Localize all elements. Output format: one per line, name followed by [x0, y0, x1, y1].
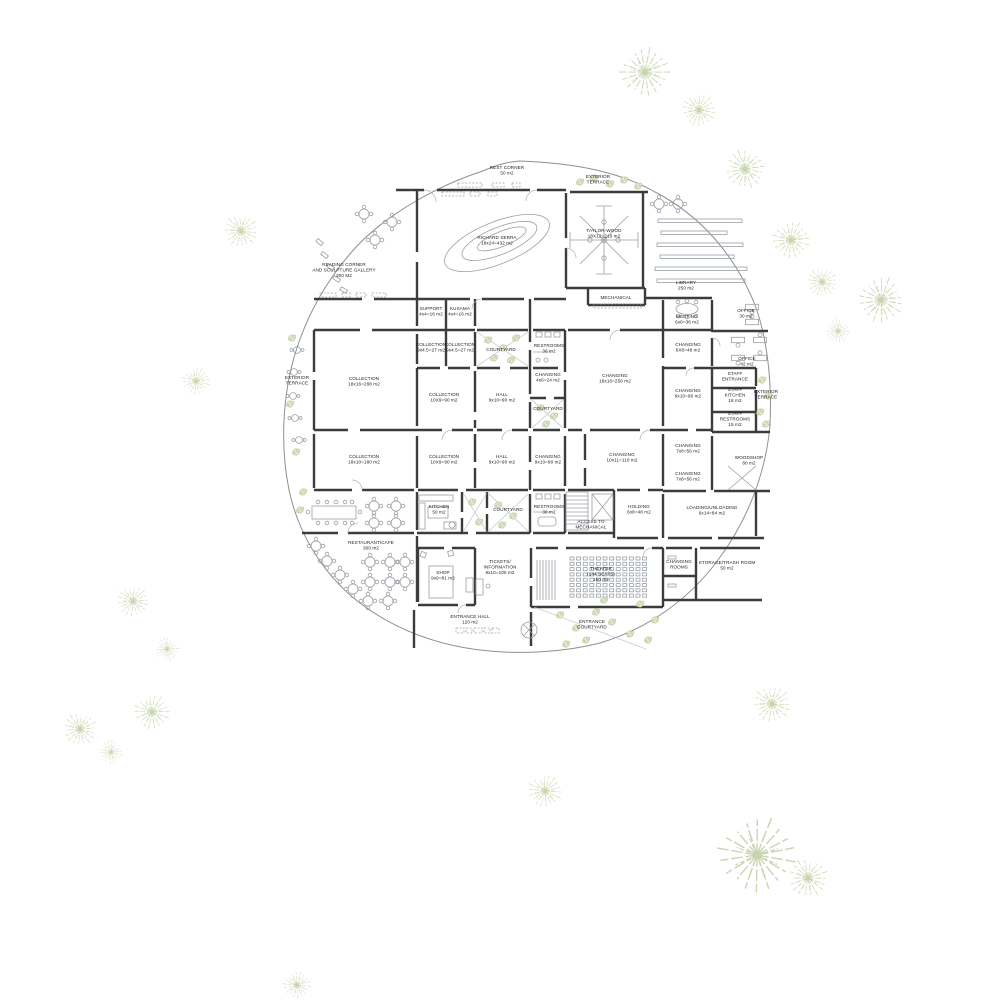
- room-label-taylor_wood: 18X12=216 m2: [588, 234, 621, 239]
- room-label-collection_90_b: COLLECTION: [429, 454, 459, 459]
- room-label-library: LIBRARY: [676, 280, 696, 285]
- room-label-holding: 6x8=48 m2: [627, 510, 651, 515]
- room-label-entrance_courtyard: COURTYARD: [577, 625, 607, 630]
- room-label-changing_256: CHANGING: [602, 373, 628, 378]
- room-label-office_30: 30 m2: [739, 314, 753, 319]
- room-label-changing_56_a: CHANGING: [675, 443, 701, 448]
- room-label-collection_288: COLLECTION: [349, 376, 379, 381]
- room-label-changing_rooms: CHANGING: [666, 559, 692, 564]
- room-label-access_mechanical: MECHANICAL: [575, 525, 606, 530]
- floor-plan: REST CORNER50 m2EXTERIORTERRACERICHARD S…: [0, 0, 1000, 1000]
- room-label-collection_27_b: COLLECTION: [445, 342, 475, 347]
- room-label-woodshop: 80 m2: [742, 461, 756, 466]
- room-label-kusama: 4x4=16 m2: [448, 312, 472, 317]
- room-label-library: 250 m2: [678, 286, 694, 291]
- room-label-meeting: 6x6=36 m2: [675, 320, 699, 325]
- room-label-support: 4x4=16 m2: [419, 312, 443, 317]
- room-label-ext_terrace_top: EXTERIOR: [586, 174, 611, 179]
- room-label-loading: 6x14=84 m2: [699, 511, 726, 516]
- room-label-staff_entrance: ENTRANCE: [722, 377, 748, 382]
- room-label-staff_kitchen: STAFF: [728, 387, 743, 392]
- room-label-restrooms_top: RESTROOMS: [534, 343, 565, 348]
- room-label-staff_restrooms: 15 m2: [728, 422, 742, 427]
- room-label-hall_90_a: 9x10=90 m2: [489, 398, 516, 403]
- room-label-changing_90_b: CHANGING: [535, 454, 561, 459]
- room-label-staff_kitchen: 18 m2: [728, 398, 742, 403]
- room-label-richard_serra: 18x24=432 m2: [481, 241, 513, 246]
- room-label-changing_110: 10x11=110 m2: [606, 458, 637, 463]
- room-label-ext_terrace_right: EXTERIOR: [754, 389, 779, 394]
- room-label-changing_56_a: 7x8=56 m2: [676, 449, 700, 454]
- floor-plan-canvas: REST CORNER50 m2EXTERIORTERRACERICHARD S…: [0, 0, 1000, 1000]
- room-label-office_30: OFFICE: [737, 308, 754, 313]
- room-label-meeting: MEETING: [676, 314, 698, 319]
- room-label-restrooms_top: 36 m2: [542, 349, 556, 354]
- room-label-staff_entrance: STAFF: [728, 371, 743, 376]
- room-label-office_42: OFFICE: [738, 356, 755, 361]
- room-label-theater: 150 m2: [593, 577, 609, 582]
- room-label-tickets: TICKETS/: [489, 559, 511, 564]
- room-label-kitchen: 50 m2: [432, 510, 446, 515]
- room-label-collection_180: 18x10=180 m2: [348, 460, 380, 465]
- room-label-collection_90_a: COLLECTION: [429, 392, 459, 397]
- room-label-changing_90_b: 9x10=90 m2: [535, 460, 562, 465]
- room-label-rest_corner: REST CORNER: [490, 165, 525, 170]
- room-label-office_42: 42 m2: [740, 362, 754, 367]
- room-label-changing_256: 16x16=256 m2: [599, 379, 631, 384]
- room-label-reading_corner: 300 M2: [336, 273, 352, 278]
- room-label-changing_90_a: CHANGING: [675, 388, 701, 393]
- room-label-changing_48: CHANGING: [675, 342, 701, 347]
- room-label-entrance_hall: 120 m2: [462, 620, 478, 625]
- room-label-collection_27_a: 9x4.5=27 m2: [417, 348, 445, 353]
- room-label-staff_restrooms: RESTROOMS: [720, 417, 751, 422]
- room-label-collection_90_b: 10X9=90 m2: [430, 460, 458, 465]
- room-label-rest_corner: 50 m2: [500, 171, 514, 176]
- room-label-hall_90_b: 9x10=90 m2: [489, 460, 516, 465]
- room-label-woodshop: WOODSHOP: [735, 455, 764, 460]
- room-label-changing_48: 6X8=48 m2: [676, 348, 701, 353]
- room-label-changing_56_b: CHANGING: [675, 471, 701, 476]
- room-label-reading_corner: AND SCULPTURE GALLERY: [312, 268, 375, 273]
- taylor-wood-mobile: [570, 206, 638, 274]
- room-label-ext_terrace_right: TERRACE: [755, 395, 778, 400]
- room-label-changing_56_b: 7x8=56 m2: [676, 477, 700, 482]
- room-label-theater: (144 SEATS): [587, 572, 615, 577]
- reading-table: [355, 205, 373, 223]
- room-label-restaurant: 300 m2: [363, 546, 379, 551]
- room-label-hall_90_a: HALL: [496, 392, 508, 397]
- room-label-kusama: KUSAMA: [450, 306, 471, 311]
- room-label-courtyard_c: COURTYARD: [493, 507, 523, 512]
- room-label-richard_serra: RICHARD SERRA: [477, 235, 517, 240]
- room-label-changing_24: CHANGING: [535, 372, 561, 377]
- room-label-support: SUPPORT: [420, 306, 443, 311]
- room-label-courtyard_a: COURTYARD: [486, 347, 516, 352]
- room-label-changing_24: 4x6=24 m2: [536, 378, 560, 383]
- room-label-taylor_wood: TAYLOR-WOOD: [586, 228, 622, 233]
- room-label-courtyard_b: COURTYARD: [533, 406, 563, 411]
- room-label-holding: HOLDING: [628, 504, 650, 509]
- room-label-ext_terrace_top: TERRACE: [587, 180, 610, 185]
- room-label-mechanical: MECHANICAL: [600, 295, 631, 300]
- room-label-ext_terrace_left: TERRACE: [286, 381, 309, 386]
- room-label-restaurant: RESTAURANT/CAFE: [348, 540, 394, 545]
- room-label-kitchen: KITCHEN: [429, 504, 450, 509]
- room-label-shop: SHOP: [436, 570, 449, 575]
- room-label-storage_trash: 50 m2: [720, 566, 734, 571]
- room-label-reading_corner: READING CORNER: [322, 262, 366, 267]
- room-label-staff_kitchen: KITCHEN: [725, 393, 746, 398]
- room-label-collection_27_a: COLLECTION: [416, 342, 446, 347]
- room-label-changing_rooms: ROOMS: [670, 565, 688, 570]
- room-label-restrooms_bottom: RESTROOMS: [534, 504, 565, 509]
- room-label-collection_180: COLLECTION: [349, 454, 379, 459]
- room-label-access_mechanical: ACCESS TO: [577, 519, 605, 524]
- room-label-loading: LOADING/UNLOADING: [687, 505, 738, 510]
- room-label-changing_110: CHANGING: [609, 452, 635, 457]
- room-label-changing_90_a: 9x10=90 m2: [675, 394, 702, 399]
- room-label-restrooms_bottom: 36 m2: [542, 510, 556, 515]
- room-label-collection_288: 18x16=288 m2: [348, 382, 380, 387]
- room-label-theater: THEATER: [590, 566, 612, 571]
- room-label-ext_terrace_left: EXTERIOR: [285, 375, 310, 380]
- room-label-collection_27_b: 9x4.5=27 m2: [446, 348, 474, 353]
- room-label-storage_trash: STORAGE/TRASH ROOM: [699, 560, 756, 565]
- room-label-entrance_hall: ENTRANCE HALL: [450, 614, 490, 619]
- room-label-hall_90_b: HALL: [496, 454, 508, 459]
- room-label-collection_90_a: 10X9=90 m2: [430, 398, 458, 403]
- room-label-tickets: INFORMATION: [484, 565, 517, 570]
- room-label-entrance_courtyard: ENTRANCE: [579, 619, 605, 624]
- room-label-shop: 9x9=81 m2: [431, 576, 455, 581]
- room-label-tickets: 9x10=100 m2: [485, 570, 514, 575]
- room-label-staff_restrooms: STAFF: [728, 411, 743, 416]
